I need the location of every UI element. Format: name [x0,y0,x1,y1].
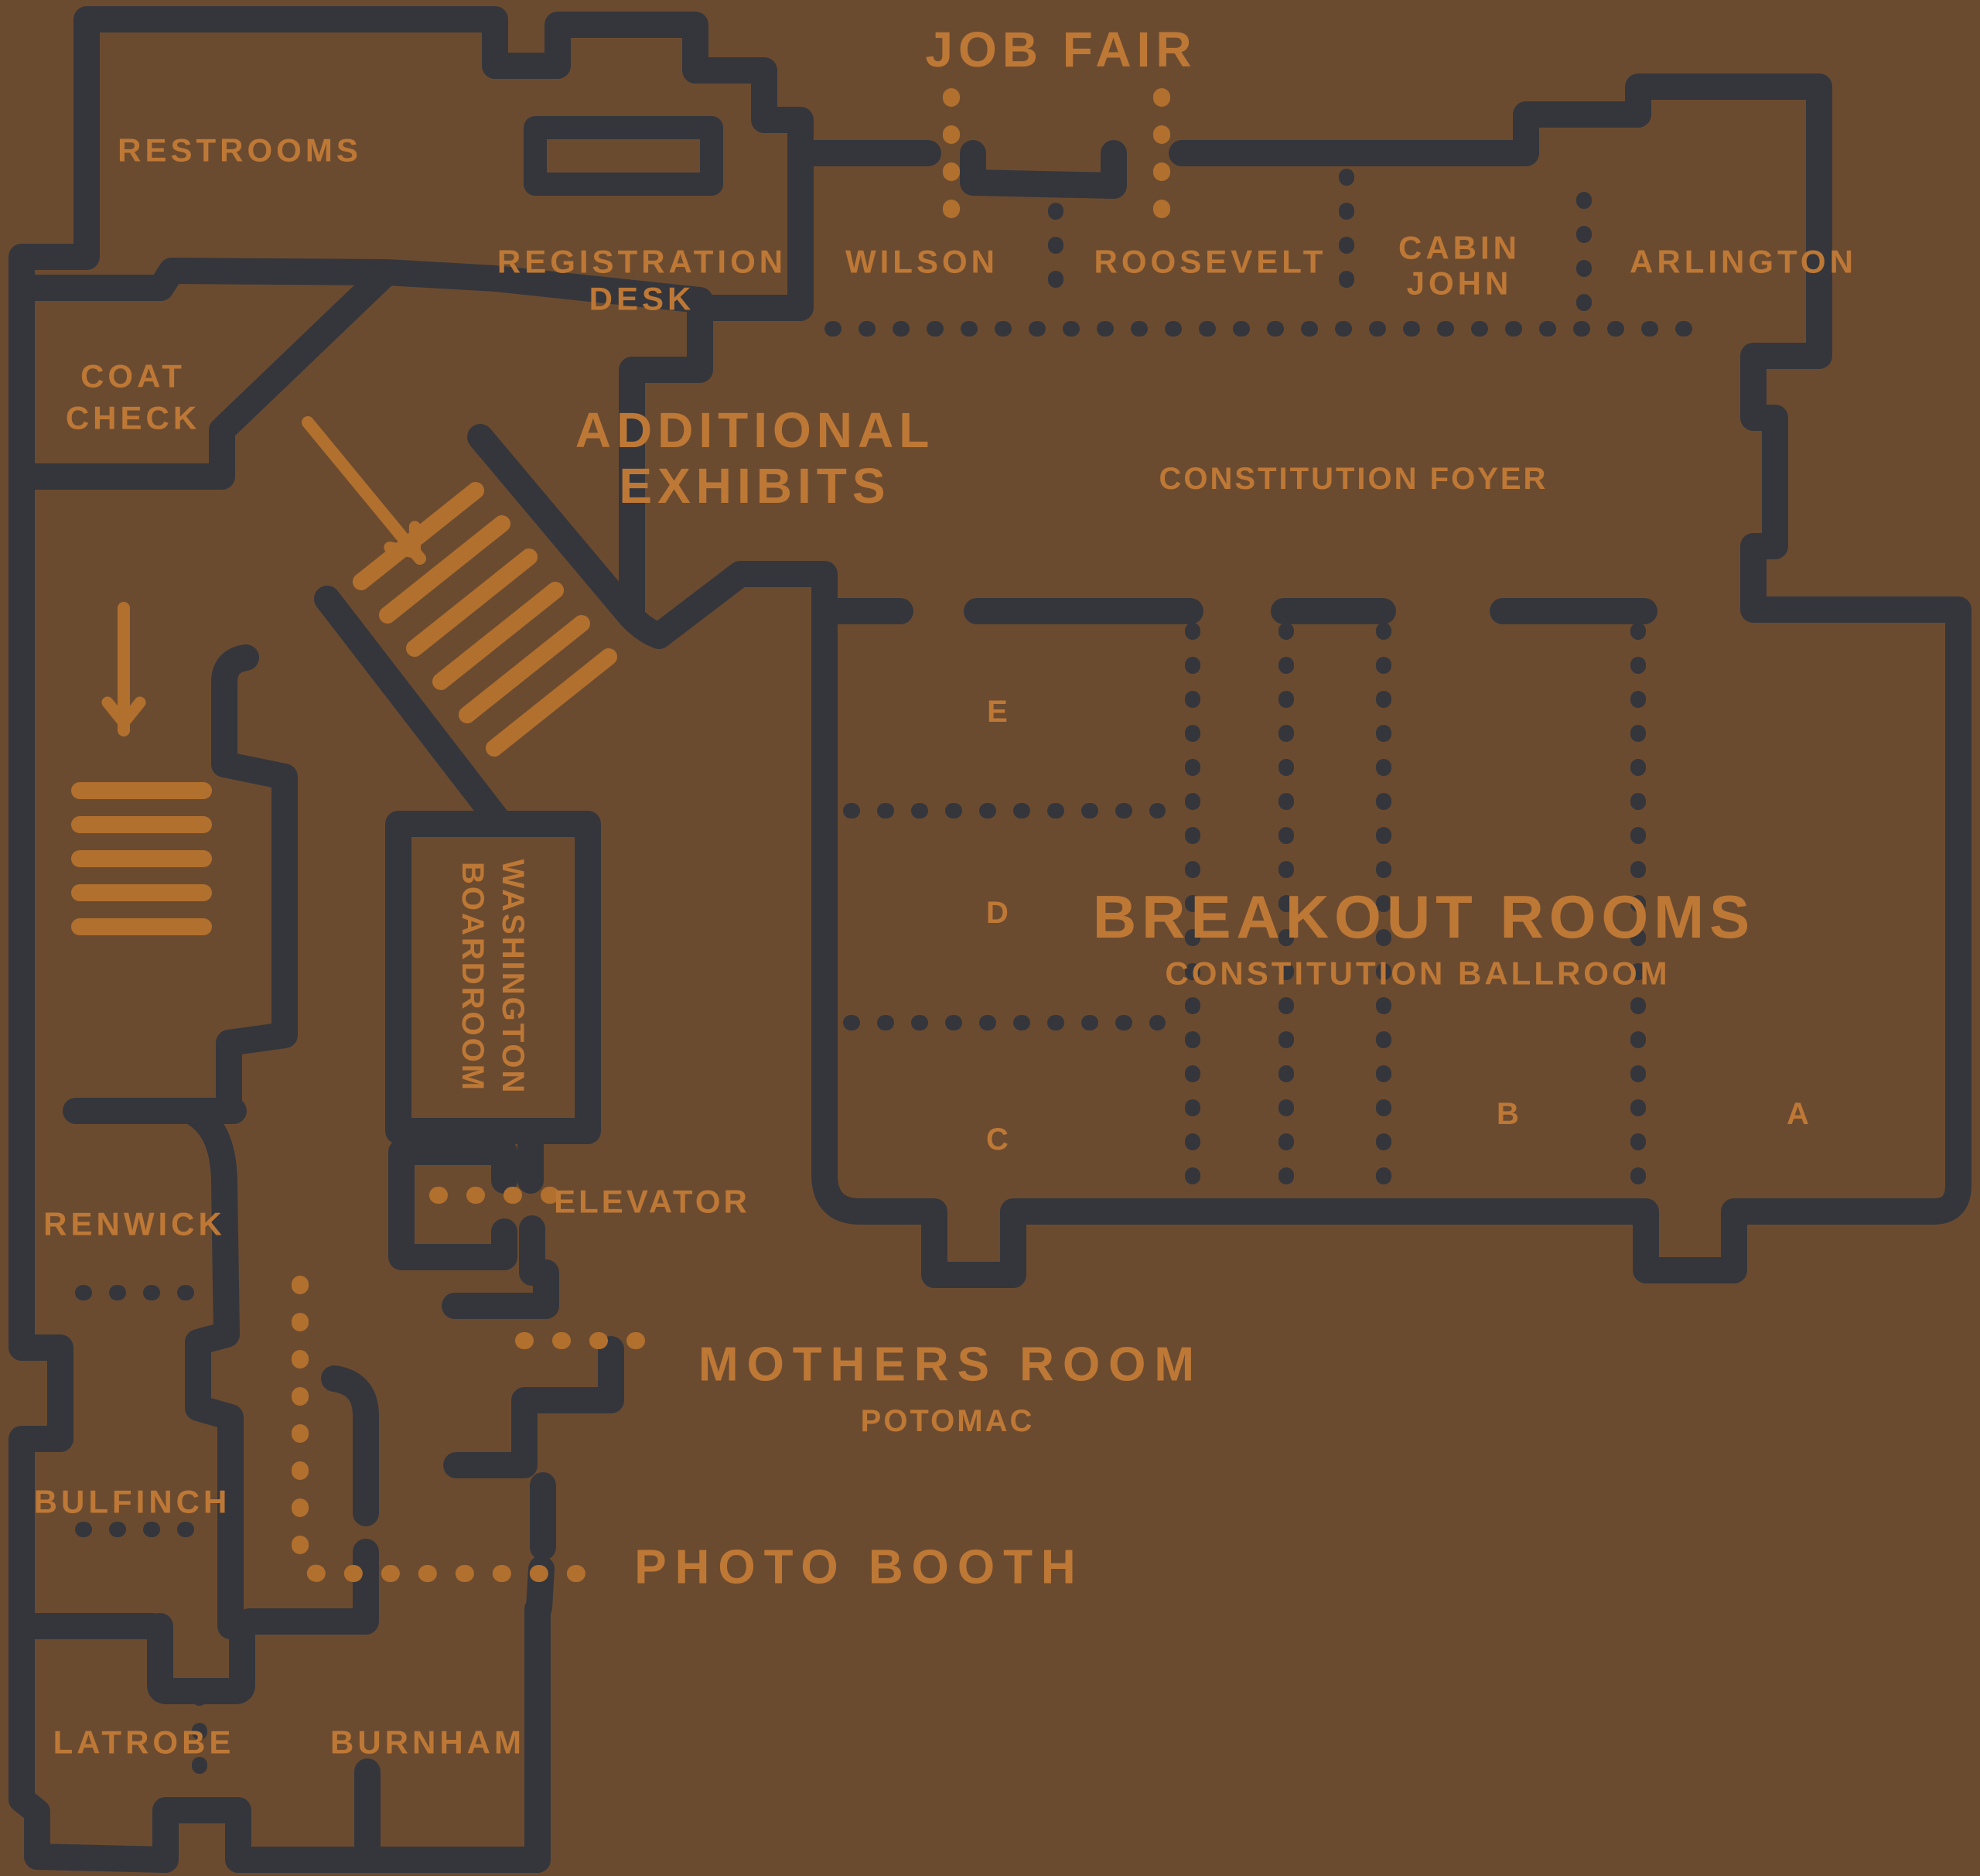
label-boardroom-line1: WASHINGTON [496,859,530,1095]
label-additional-exhibits-line2: EXHIBITS [619,458,890,514]
boardroom-outline [398,824,588,1131]
wall-renwick-east [193,1112,230,1626]
registration-desk-box [535,128,712,184]
label-roosevelt: ROOSEVELT [1094,244,1327,280]
label-section-a: A [1787,1097,1810,1131]
label-job-fair: JOB FAIR [925,22,1197,77]
label-restrooms: RESTROOMS [118,132,362,169]
label-registration-line2: DESK [589,281,695,317]
stairs-icon [80,791,203,927]
label-constitution-foyer: CONSTITUTION FOYER [1159,462,1548,496]
label-boardroom-line2: BOARDROOM [456,862,490,1092]
wall-top-row-and-right-edge [801,87,1958,610]
venue-floor-plan: JOB FAIR RESTROOMS REGISTRATION DESK COA… [0,0,1980,1876]
label-coat-check-line2: CHECK [66,400,200,436]
label-section-c: C [986,1123,1009,1157]
label-burnham: BURNHAM [330,1724,525,1761]
label-mothers-room: MOTHERS ROOM [698,1338,1203,1392]
arrow-exhibits-icon [308,422,420,559]
label-bulfinch: BULFINCH [34,1484,231,1520]
label-registration-line1: REGISTRATION [497,244,787,280]
wall-corridor-west [249,1379,366,1621]
label-constitution-ballroom: CONSTITUTION BALLROOM [1165,955,1670,992]
label-breakout-rooms: BREAKOUT ROOMS [1093,883,1755,951]
label-section-d: D [986,896,1009,930]
label-cabin-john-line1: CABIN [1398,230,1521,266]
label-latrobe: LATROBE [53,1724,235,1761]
label-cabin-john-line2: JOHN [1407,265,1513,302]
elevator-room [401,1152,504,1257]
label-photo-booth: PHOTO BOOTH [634,1541,1084,1594]
wall-ballroom-perimeter [480,437,1958,1275]
label-elevator: ELEVATOR [554,1184,750,1220]
label-potomac: POTOMAC [861,1404,1035,1438]
wall-zigzag-south [456,1349,611,1465]
label-renwick: RENWICK [43,1206,226,1242]
floor-plan-page: JOB FAIR RESTROOMS REGISTRATION DESK COA… [0,0,1980,1876]
label-section-b: B [1497,1097,1520,1131]
label-additional-exhibits-line1: ADDITIONAL [575,402,935,458]
label-wilson: WILSON [845,244,999,280]
label-arlington: ARLINGTON [1630,244,1857,280]
wall-corridor-east [539,1485,543,1608]
label-washington-boardroom: WASHINGTON BOARDROOM [456,859,530,1095]
label-coat-check-line1: COAT [80,358,186,395]
label-section-e: E [987,695,1009,729]
